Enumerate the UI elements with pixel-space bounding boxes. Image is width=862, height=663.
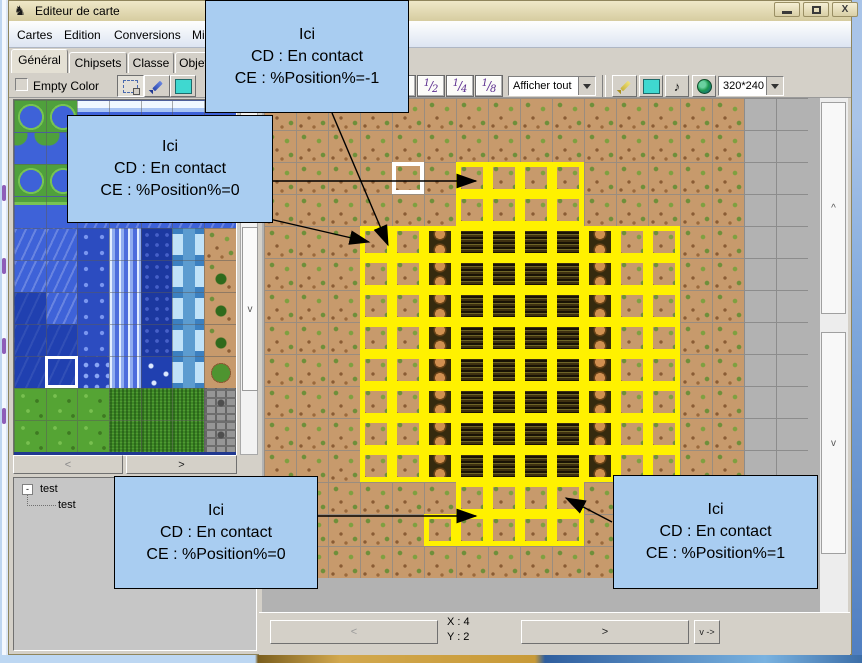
map-scroll-left-button[interactable]: < [270, 620, 438, 644]
map-cell-crop-edge-highlighted [424, 450, 456, 482]
map-cell-crop-edge-highlighted [584, 354, 616, 386]
map-cell-dirt [712, 354, 744, 386]
map-cell-dirt [680, 98, 712, 130]
map-cell-crop-edge-highlighted [424, 322, 456, 354]
chevron-up-icon: ^ [831, 203, 836, 214]
map-cell-dirt-highlighted [616, 354, 648, 386]
app-icon: ♞ [14, 4, 28, 18]
map-cell-dirt [264, 386, 296, 418]
map-cell-crop-edge-highlighted [584, 450, 616, 482]
map-cell-dirt [424, 162, 456, 194]
map-cell-dirt [648, 162, 680, 194]
map-cell-dirt [680, 226, 712, 258]
callout-line: CE : %Position%=0 [100, 180, 239, 202]
map-cell-dirt [328, 482, 360, 514]
map-cell-dirt [264, 226, 296, 258]
map-cell-dirt-highlighted [392, 258, 424, 290]
background-window-edge [0, 0, 8, 663]
callout-line: CE : %Position%=-1 [235, 68, 380, 90]
map-cell-dirt [424, 482, 456, 514]
maximize-button[interactable] [803, 2, 829, 17]
map-cell-empty-void [744, 322, 776, 354]
palette-scroll-right-button[interactable]: > [126, 455, 237, 474]
map-cell-dirt [584, 482, 616, 514]
map-cell-crop-highlighted [488, 290, 520, 322]
map-cell-dirt [712, 290, 744, 322]
map-cell-empty-void [744, 194, 776, 226]
map-cell-dirt [360, 482, 392, 514]
map-cell-dirt [680, 418, 712, 450]
map-cell-dirt [552, 546, 584, 578]
map-cell-crop-edge-highlighted [424, 386, 456, 418]
tab-general[interactable]: Général [11, 49, 68, 73]
resolution-value: 320*240 [719, 80, 766, 92]
callout-line: CE : %Position%=1 [646, 543, 785, 565]
palette-tile-deep[interactable] [14, 324, 46, 356]
map-cell-dirt-highlighted [616, 322, 648, 354]
map-cell-dirt-highlighted [392, 418, 424, 450]
map-cell-crop-highlighted [552, 418, 584, 450]
palette-tile-grassd[interactable] [141, 388, 173, 420]
palette-tile-wedge[interactable] [14, 132, 46, 164]
map-cell-crop-edge-highlighted [424, 258, 456, 290]
palette-tile-water[interactable] [14, 260, 46, 292]
map-cell-crop-highlighted [456, 322, 488, 354]
palette-tile-grass[interactable] [77, 388, 109, 420]
minimize-icon [782, 11, 792, 14]
map-cell-dirt [520, 98, 552, 130]
map-cell-dirt [680, 130, 712, 162]
map-cell-crop-highlighted [456, 290, 488, 322]
chevron-down-icon: v [831, 438, 836, 449]
world-button[interactable] [692, 75, 716, 97]
map-cell-dirt [328, 258, 360, 290]
background-scroll-mark [2, 338, 6, 354]
palette-tile-deep[interactable] [46, 324, 78, 356]
palette-tile-grass[interactable] [46, 420, 78, 452]
background-scroll-mark [2, 185, 6, 201]
callout-line: Ici [299, 24, 315, 46]
map-cell-dirt-highlighted [616, 258, 648, 290]
callout-line: CD : En contact [659, 521, 771, 543]
color-swatch-button[interactable] [639, 75, 663, 97]
map-cell-dirt-highlighted [648, 226, 680, 258]
map-cell-dirt-highlighted [488, 162, 520, 194]
close-icon: X [842, 5, 849, 15]
menubar: Cartes Edition Conversions Mi [9, 21, 851, 48]
map-cell-dirt-highlighted [520, 482, 552, 514]
map-cell-dirt-highlighted [648, 386, 680, 418]
map-cell-dirt [520, 130, 552, 162]
map-cell-dirt [712, 386, 744, 418]
zoom-1-8-button[interactable]: 1/8 [475, 75, 503, 97]
palette-tile-wpat2[interactable] [77, 356, 109, 388]
map-cell-dirt [360, 130, 392, 162]
map-cell-dirt [712, 194, 744, 226]
map-vertical-scrollbar[interactable]: ^ v [820, 98, 848, 612]
map-cell-dirt [328, 130, 360, 162]
map-cell-dirt [392, 482, 424, 514]
map-cell-crop-highlighted [552, 450, 584, 482]
select-tool-button[interactable] [117, 75, 144, 97]
map-cell-crop-highlighted [520, 418, 552, 450]
map-cell-dirt [712, 258, 744, 290]
palette-tile-wfall[interactable] [109, 292, 141, 324]
palette-tile-wdark[interactable] [141, 260, 173, 292]
palette-tile-pillar[interactable] [172, 228, 204, 260]
map-cell-empty-void [776, 194, 808, 226]
menu-cartes[interactable]: Cartes [17, 28, 52, 42]
palette-tile-dirtg[interactable] [204, 356, 236, 388]
globe-icon [697, 79, 712, 94]
map-cell-crop-highlighted [552, 386, 584, 418]
map-cell-dirt [328, 546, 360, 578]
tree-item-root[interactable]: test [40, 483, 58, 495]
map-cell-dirt-highlighted [456, 482, 488, 514]
palette-tile-stone[interactable] [204, 388, 236, 420]
map-cell-dirt [680, 162, 712, 194]
map-cell-dirt-highlighted [648, 322, 680, 354]
map-cell-dirt [712, 130, 744, 162]
map-cell-dirt [296, 162, 328, 194]
palette-tile-grass[interactable] [77, 420, 109, 452]
map-cell-dirt-highlighted [648, 418, 680, 450]
palette-tile-pillar[interactable] [172, 324, 204, 356]
palette-tile-water[interactable] [46, 228, 78, 260]
map-cell-crop-highlighted [520, 322, 552, 354]
palette-tile-grass[interactable] [14, 420, 46, 452]
resolution-dropdown[interactable]: 320*240 [718, 76, 784, 96]
palette-tile-grassd[interactable] [172, 420, 204, 452]
palette-tile-water[interactable] [46, 292, 78, 324]
map-cell-crop-highlighted [488, 258, 520, 290]
map-cell-crop-edge-highlighted [584, 418, 616, 450]
zoom-1-2-button[interactable]: 1/2 [417, 75, 445, 97]
palette-tile-dirtp[interactable] [204, 292, 236, 324]
map-cell-dirt [296, 226, 328, 258]
map-cell-dirt [712, 418, 744, 450]
map-cell-empty-void [744, 386, 776, 418]
maximize-icon [812, 6, 821, 14]
palette-tile-wpat[interactable] [77, 324, 109, 356]
map-cell-dirt [360, 194, 392, 226]
callout-line: CD : En contact [114, 158, 226, 180]
palette-tile-water[interactable] [46, 260, 78, 292]
palette-scroll-down-button[interactable]: v [242, 227, 258, 391]
map-cell-dirt-highlighted [424, 514, 456, 546]
palette-tile-wfall[interactable] [109, 356, 141, 388]
map-cell-dirt [680, 290, 712, 322]
callout-position-0-top: Ici CD : En contact CE : %Position%=0 [67, 115, 273, 223]
map-scroll-right-button[interactable]: > [521, 620, 689, 644]
map-cell-dirt [392, 194, 424, 226]
map-cell-dirt [296, 290, 328, 322]
map-cell-dirt [456, 98, 488, 130]
palette-tile-grassd[interactable] [109, 388, 141, 420]
map-cell-dirt [616, 98, 648, 130]
palette-tile-dirtp[interactable] [204, 324, 236, 356]
map-cell-crop-highlighted [552, 290, 584, 322]
map-cell-dirt [264, 258, 296, 290]
map-cell-empty-void [744, 354, 776, 386]
cursor-x-coordinate: X : 4 [447, 616, 470, 628]
map-cell-crop-highlighted [488, 418, 520, 450]
map-cell-dirt [296, 418, 328, 450]
map-cell-crop-highlighted [456, 258, 488, 290]
map-cell-dirt-highlighted [488, 482, 520, 514]
map-cell-crop-highlighted [488, 226, 520, 258]
palette-tile-wfall[interactable] [109, 228, 141, 260]
map-cell-crop-edge-highlighted [424, 418, 456, 450]
map-cell-dirt [328, 354, 360, 386]
tab-classe[interactable]: Classe [128, 52, 174, 73]
map-cell-empty-void [776, 226, 808, 258]
palette-tile-wfall[interactable] [109, 324, 141, 356]
map-cell-dirt-highlighted [648, 258, 680, 290]
palette-tile-grass[interactable] [46, 388, 78, 420]
map-cell-dirt [328, 386, 360, 418]
map-cell-dirt-highlighted [360, 290, 392, 322]
marquee-select-icon [123, 80, 138, 93]
map-cell-crop-highlighted [552, 354, 584, 386]
map-cell-dirt [328, 418, 360, 450]
map-cell-dirt-highlighted [360, 386, 392, 418]
map-cell-crop-edge-highlighted [584, 290, 616, 322]
map-cell-crop-highlighted [520, 258, 552, 290]
zoom-denominator: 8 [490, 84, 496, 95]
map-cell-crop-highlighted [456, 418, 488, 450]
map-cell-dirt [680, 194, 712, 226]
palette-tile-wgrass[interactable] [14, 164, 46, 196]
close-button[interactable]: X [832, 2, 858, 17]
map-cell-dirt [424, 98, 456, 130]
palette-tile-pillar[interactable] [172, 260, 204, 292]
map-cell-dirt-highlighted [360, 418, 392, 450]
palette-tile-water[interactable] [14, 228, 46, 260]
map-cell-crop-highlighted [488, 322, 520, 354]
map-scroll-up-button[interactable]: ^ [821, 102, 846, 314]
map-cell-dirt [616, 162, 648, 194]
callout-line: Ici [708, 499, 724, 521]
palette-tile-wtop[interactable] [14, 196, 46, 228]
palette-tile-dirtp[interactable] [204, 260, 236, 292]
empty-color-checkbox[interactable] [15, 78, 28, 91]
toolbar-separator [602, 75, 606, 97]
palette-tile-deep[interactable] [14, 292, 46, 324]
map-cell-dirt-highlighted [360, 226, 392, 258]
lighting-pen-button[interactable] [612, 75, 637, 97]
music-button[interactable]: ♪ [665, 75, 689, 97]
map-cell-crop-edge-highlighted [424, 354, 456, 386]
map-cell-dirt [328, 514, 360, 546]
map-cell-dirt [552, 130, 584, 162]
map-cell-dirt [328, 450, 360, 482]
palette-tile-wfall[interactable] [109, 260, 141, 292]
palette-scroll-left-button[interactable]: < [13, 455, 123, 474]
palette-tile-wdark[interactable] [141, 324, 173, 356]
palette-tile-grass[interactable] [14, 388, 46, 420]
map-cell-empty-void [776, 290, 808, 322]
map-cell-dirt [264, 290, 296, 322]
map-scroll-corner-button[interactable]: v -> [694, 620, 720, 644]
palette-tile-grassd[interactable] [109, 420, 141, 452]
fill-color-button[interactable] [170, 75, 196, 97]
map-cell-dirt [328, 290, 360, 322]
teal-swatch-icon [643, 79, 660, 94]
map-cell-crop-highlighted [552, 322, 584, 354]
map-cell-dirt [616, 194, 648, 226]
map-cell-empty-void [744, 130, 776, 162]
map-cell-dirt [296, 130, 328, 162]
map-cell-dirt [424, 194, 456, 226]
menu-edition[interactable]: Edition [64, 28, 101, 42]
callout-position-minus1: Ici CD : En contact CE : %Position%=-1 [205, 0, 409, 113]
map-cell-dirt [488, 130, 520, 162]
palette-tile-grassd[interactable] [172, 388, 204, 420]
callout-line: CD : En contact [251, 46, 363, 68]
map-cell-dirt-highlighted [456, 514, 488, 546]
window-controls: X [774, 2, 858, 17]
map-cell-crop-edge-highlighted [584, 386, 616, 418]
map-cell-empty-void [776, 130, 808, 162]
map-cell-dirt [712, 98, 744, 130]
music-note-icon: ♪ [674, 80, 681, 93]
map-cell-dirt-highlighted [360, 354, 392, 386]
map-cell-dirt [264, 418, 296, 450]
map-cell-dirt [328, 194, 360, 226]
callout-position-1: Ici CD : En contact CE : %Position%=1 [613, 475, 818, 589]
map-cell-dirt-highlighted [616, 226, 648, 258]
map-cell-crop-edge-highlighted [584, 322, 616, 354]
tree-connector-line [27, 495, 56, 506]
map-cell-dirt-highlighted [360, 450, 392, 482]
map-cell-dirt [712, 162, 744, 194]
cursor-y-coordinate: Y : 2 [447, 631, 469, 643]
map-cell-dirt-highlighted [392, 322, 424, 354]
callout-line: Ici [208, 500, 224, 522]
map-cell-dirt [552, 98, 584, 130]
palette-tile-dirt[interactable] [204, 228, 236, 260]
dropdown-arrow-icon [766, 77, 783, 95]
map-cell-crop-highlighted [552, 258, 584, 290]
map-cell-dirt [584, 162, 616, 194]
callout-line: Ici [162, 136, 178, 158]
palette-tile-wsplash[interactable] [141, 356, 173, 388]
map-cell-dirt-highlighted [488, 194, 520, 226]
map-cell-dirt [328, 226, 360, 258]
map-cell-empty-void [744, 98, 776, 130]
map-cell-dirt-highlighted [392, 386, 424, 418]
map-cell-dirt-highlighted [552, 194, 584, 226]
map-cell-dirt-highlighted [456, 162, 488, 194]
map-cell-dirt [648, 98, 680, 130]
map-cell-empty-void [744, 226, 776, 258]
map-cell-dirt [584, 98, 616, 130]
palette-tile-stone[interactable] [204, 420, 236, 452]
display-mode-dropdown[interactable]: Afficher tout [508, 76, 596, 96]
map-cell-crop-highlighted [520, 450, 552, 482]
map-cell-crop-highlighted [488, 386, 520, 418]
pen-icon [149, 78, 165, 94]
callout-line: CD : En contact [160, 522, 272, 544]
map-cell-crop-edge-highlighted [584, 226, 616, 258]
callout-line: CE : %Position%=0 [146, 544, 285, 566]
map-cell-dirt [296, 386, 328, 418]
palette-tile-deep[interactable] [14, 356, 46, 388]
map-cell-crop-highlighted [488, 354, 520, 386]
map-cell-empty-void [776, 418, 808, 450]
map-cell-crop-highlighted [520, 290, 552, 322]
map-cell-dirt [584, 130, 616, 162]
map-cell-dirt [680, 354, 712, 386]
yellow-pen-icon [617, 78, 633, 94]
palette-tile-wpat[interactable] [77, 228, 109, 260]
palette-tile-wgrass[interactable] [14, 100, 46, 132]
map-cell-crop-edge-highlighted [584, 258, 616, 290]
map-cell-dirt [296, 354, 328, 386]
minimize-button[interactable] [774, 2, 800, 17]
map-cell-empty-void [776, 258, 808, 290]
menu-mi[interactable]: Mi [192, 28, 205, 42]
tree-item-child[interactable]: test [58, 499, 76, 511]
menu-conversions[interactable]: Conversions [114, 28, 181, 42]
palette-tile-pillar[interactable] [172, 292, 204, 324]
display-mode-value: Afficher tout [509, 80, 578, 92]
map-cell-dirt-highlighted [520, 162, 552, 194]
map-cell-dirt [392, 162, 424, 194]
zoom-1-4-button[interactable]: 1/4 [446, 75, 474, 97]
map-cell-dirt [712, 322, 744, 354]
map-cell-empty-void [776, 162, 808, 194]
palette-selected-tile-outline [45, 356, 78, 388]
map-cell-dirt-highlighted [648, 354, 680, 386]
map-scroll-down-button[interactable]: v [821, 332, 846, 554]
map-cell-dirt [360, 546, 392, 578]
taskbar-strip [0, 655, 862, 663]
map-cell-crop-highlighted [456, 226, 488, 258]
map-cell-empty-void [744, 290, 776, 322]
palette-tile-wpat[interactable] [77, 260, 109, 292]
map-cell-crop-highlighted [520, 354, 552, 386]
palette-tile-wpat[interactable] [77, 292, 109, 324]
zoom-denominator: 2 [432, 84, 438, 95]
palette-tile-wdark[interactable] [141, 228, 173, 260]
map-cell-crop-highlighted [456, 386, 488, 418]
tab-chipsets[interactable]: Chipsets [69, 52, 127, 73]
map-cell-dirt-highlighted [392, 290, 424, 322]
map-cell-dirt [296, 258, 328, 290]
map-cell-dirt-highlighted [360, 322, 392, 354]
map-cell-dirt-highlighted [456, 194, 488, 226]
map-cell-empty-void [744, 162, 776, 194]
tree-expander[interactable]: - [22, 484, 33, 495]
palette-tile-pillar[interactable] [172, 356, 204, 388]
map-cell-dirt [264, 354, 296, 386]
map-cell-dirt [584, 514, 616, 546]
map-cell-dirt [360, 514, 392, 546]
map-cell-empty-void [776, 98, 808, 130]
map-cell-dirt-highlighted [392, 226, 424, 258]
map-cell-dirt [488, 546, 520, 578]
map-cell-dirt [392, 546, 424, 578]
palette-tile-grassd[interactable] [141, 420, 173, 452]
background-scroll-mark [2, 408, 6, 424]
map-cell-dirt [712, 226, 744, 258]
map-cell-crop-highlighted [520, 226, 552, 258]
palette-tile-wdark[interactable] [141, 292, 173, 324]
pen-tool-button[interactable] [144, 75, 170, 97]
map-cell-dirt [584, 194, 616, 226]
